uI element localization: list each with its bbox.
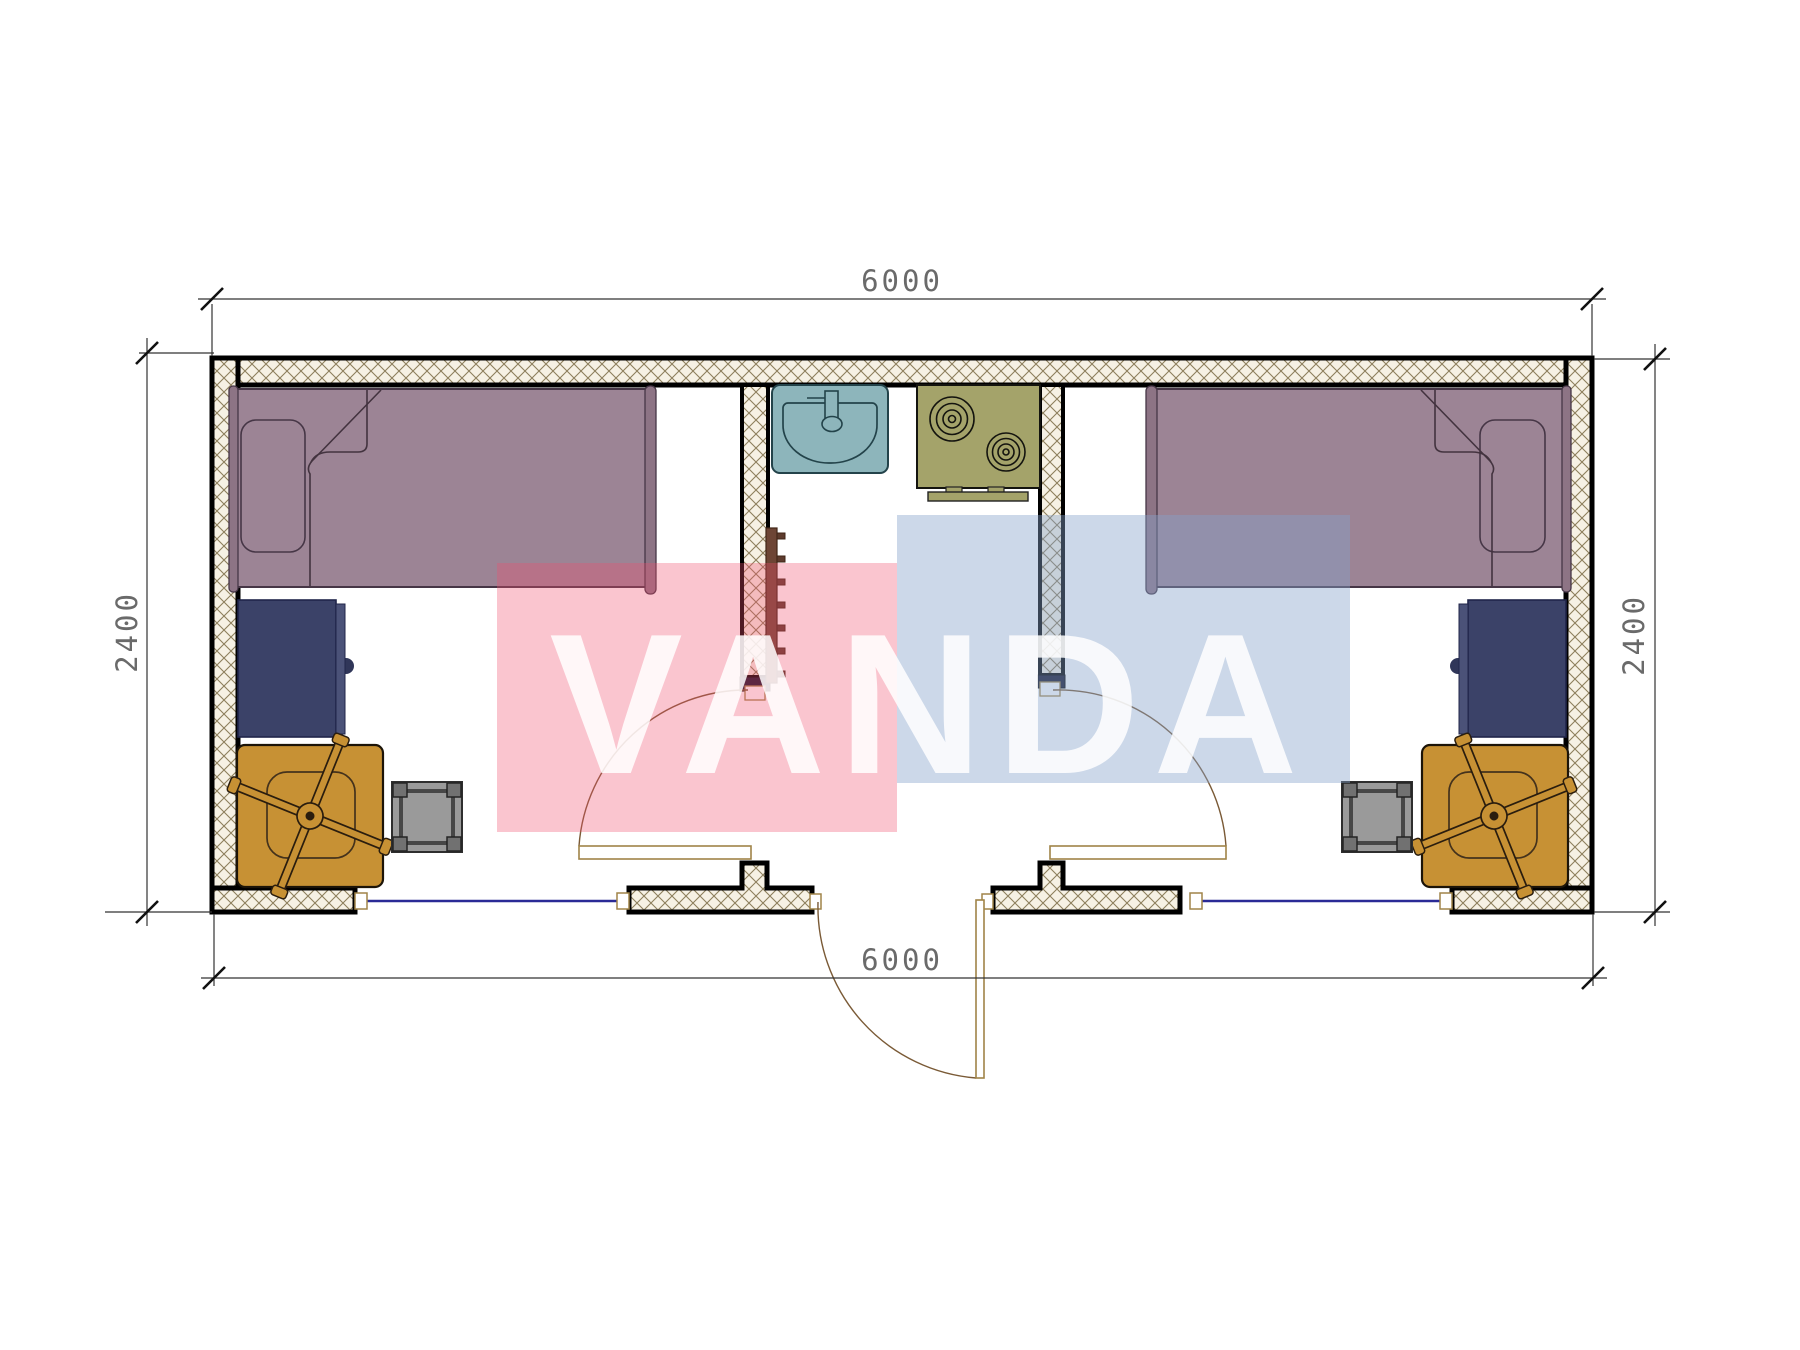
desk	[1468, 600, 1566, 737]
bed-footboard	[645, 386, 656, 594]
stove-handle-bar	[928, 492, 1028, 501]
right-door-leaf	[1050, 846, 1226, 859]
stove-top	[917, 385, 1040, 488]
desk	[238, 600, 336, 737]
window-jamb	[1440, 893, 1452, 909]
stool-leg	[447, 783, 461, 797]
sink-drain	[822, 417, 842, 432]
bed-headboard	[1562, 386, 1571, 592]
stool-leg	[393, 837, 407, 851]
dim-label-left: 2400	[110, 591, 144, 673]
stove	[917, 385, 1040, 501]
stool-leg	[393, 783, 407, 797]
wall-top	[212, 358, 1592, 385]
dim-label-top: 6000	[861, 264, 943, 298]
stool	[392, 782, 462, 852]
window-jamb	[1190, 893, 1202, 909]
stool-leg	[447, 837, 461, 851]
window-jamb	[617, 893, 629, 909]
bed-headboard	[229, 386, 238, 592]
entrance-door-swing-arc	[818, 902, 976, 1078]
floor-plan-page: 6000 6000 2400 2400	[0, 0, 1800, 1350]
towel-rail-hook	[777, 556, 785, 562]
stool	[1342, 782, 1412, 852]
entrance-door-leaf	[976, 900, 984, 1078]
stool-leg	[1397, 783, 1411, 797]
dimension-bottom: 6000	[201, 914, 1607, 989]
pillow	[241, 420, 305, 552]
left-door-leaf	[579, 846, 751, 859]
entrance-door-jamb	[810, 894, 821, 909]
dimension-right: 2400	[1594, 344, 1670, 926]
floor-plan-canvas: 6000 6000 2400 2400	[0, 0, 1800, 1350]
sink	[772, 385, 888, 473]
dimension-left: 2400	[105, 338, 214, 926]
dim-label-bottom: 6000	[861, 943, 943, 977]
windows	[355, 893, 1452, 909]
wall-bottom-right-segment	[993, 863, 1180, 912]
stool-leg	[1397, 837, 1411, 851]
watermark-text: VANDA	[549, 593, 1310, 816]
towel-rail-hook	[777, 533, 785, 539]
desk-edge-strip	[336, 604, 345, 734]
pillow	[1480, 420, 1545, 552]
stool-leg	[1343, 837, 1357, 851]
dimension-top: 6000	[198, 264, 1606, 356]
stool-leg	[1343, 783, 1357, 797]
window-jamb	[355, 893, 367, 909]
wall-bottom-left-segment	[629, 863, 812, 912]
sink-faucet	[825, 391, 838, 418]
desk-edge-strip	[1459, 604, 1468, 734]
dim-label-right: 2400	[1617, 594, 1651, 676]
